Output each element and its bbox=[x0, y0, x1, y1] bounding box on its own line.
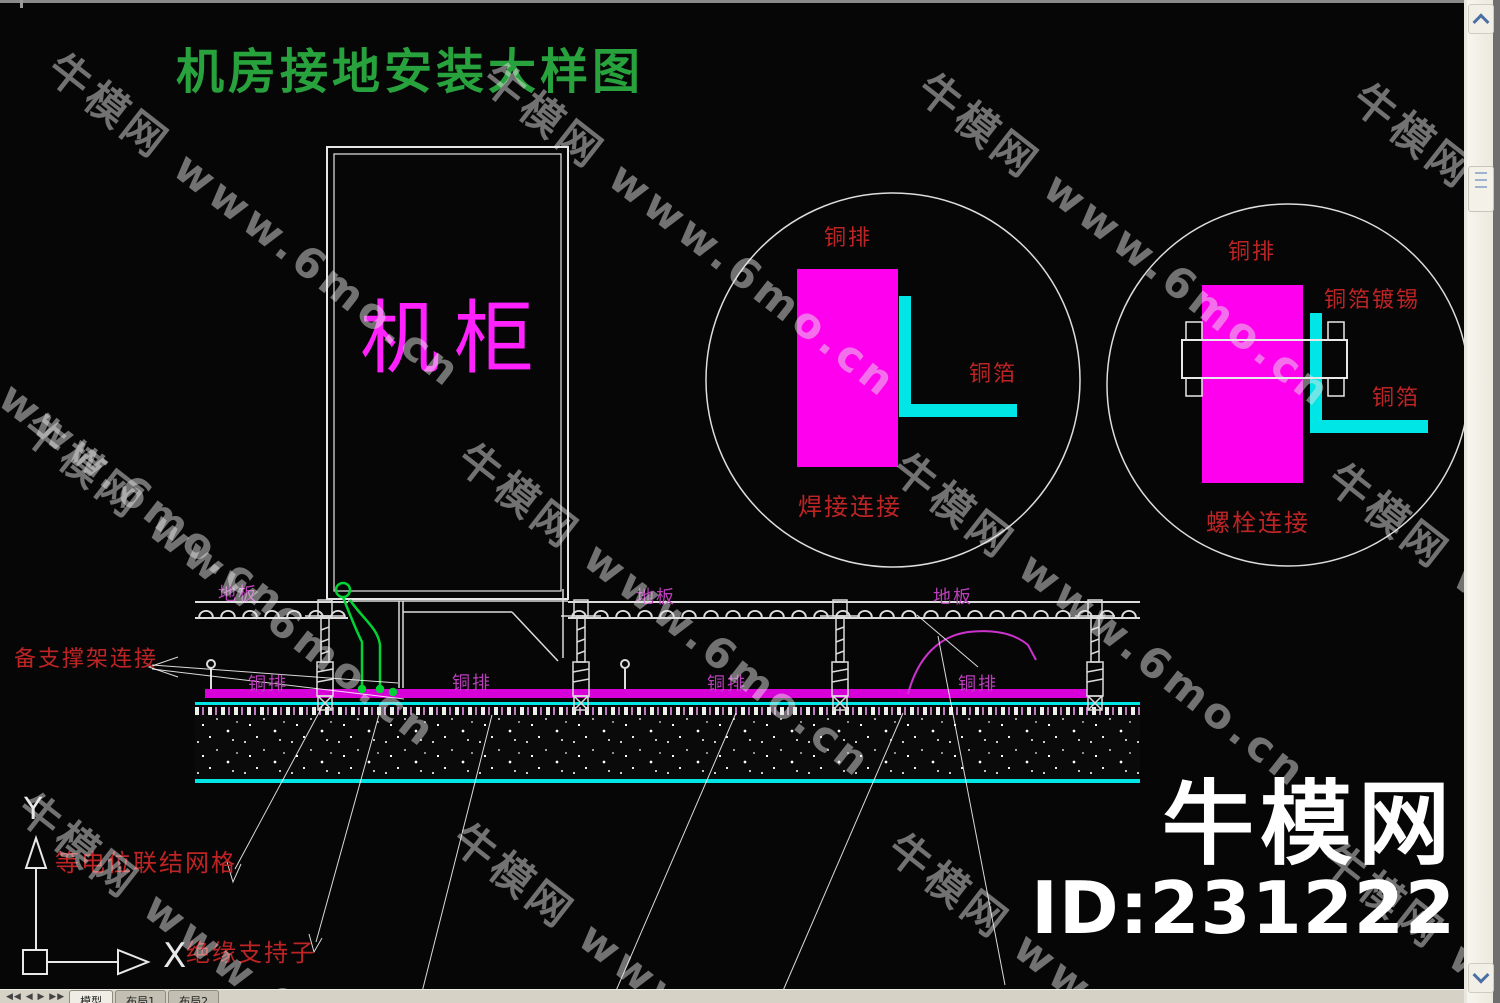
bolt-detail-caption: 螺栓连接 bbox=[1206, 503, 1310, 538]
layout-tabbar[interactable]: ◀◀ ◀ ▶ ▶▶ 模型 布局1 布局2 bbox=[0, 989, 1500, 1003]
floor-label-2: 地板 bbox=[636, 583, 676, 609]
vertical-scrollbar[interactable] bbox=[1464, 0, 1500, 1003]
cad-viewport: 机房接地安装大样图 机柜 地板 地板 地板 铜排 铜排 铜排 铜排 备支撑架连接… bbox=[0, 0, 1500, 1003]
window-top-border bbox=[0, 0, 1500, 3]
weld-detail-foil-label: 铜箔 bbox=[969, 356, 1017, 388]
scroll-down-button[interactable] bbox=[1468, 963, 1494, 993]
tab-layout2[interactable]: 布局2 bbox=[168, 990, 219, 1003]
callout-support-bracket: 备支撑架连接 bbox=[14, 641, 158, 673]
site-badge: 牛模网 ID:231222 bbox=[1026, 778, 1456, 945]
busbar-label-2: 铜排 bbox=[452, 669, 492, 695]
bolt-detail-tinned-foil-label: 铜箔镀锡 bbox=[1324, 282, 1420, 314]
tab-layout1[interactable]: 布局1 bbox=[115, 990, 166, 1003]
scrollbar-thumb[interactable] bbox=[1468, 166, 1494, 212]
scrollbar-outer-edge bbox=[1493, 0, 1500, 1003]
ucs-x-label: X bbox=[163, 936, 186, 976]
tab-model[interactable]: 模型 bbox=[69, 990, 113, 1003]
window-top-tick bbox=[20, 0, 23, 8]
weld-detail-busbar-label: 铜排 bbox=[824, 220, 872, 252]
scrollbar-track[interactable] bbox=[1467, 0, 1493, 1003]
callout-equipotential-grid: 等电位联结网格 bbox=[55, 843, 237, 878]
busbar-label-4: 铜排 bbox=[958, 670, 998, 696]
busbar-label-1: 铜排 bbox=[248, 670, 288, 696]
bolt-detail-busbar-label: 铜排 bbox=[1228, 234, 1276, 266]
chevron-up-icon bbox=[1473, 13, 1490, 30]
cabinet-label: 机柜 bbox=[360, 274, 548, 390]
callout-insulated-support: 绝缘支持子 bbox=[186, 933, 316, 968]
tab-nav-buttons[interactable]: ◀◀ ◀ ▶ ▶▶ bbox=[0, 990, 69, 1002]
ucs-y-label: Y bbox=[24, 792, 42, 827]
site-badge-name: 牛模网 bbox=[1026, 778, 1456, 872]
weld-detail-caption: 焊接连接 bbox=[798, 487, 902, 522]
floor-label-3: 地板 bbox=[933, 583, 973, 609]
drawing-title: 机房接地安装大样图 bbox=[176, 32, 644, 102]
floor-label-1: 地板 bbox=[218, 580, 258, 606]
scroll-up-button[interactable] bbox=[1468, 4, 1494, 34]
chevron-down-icon bbox=[1473, 967, 1490, 984]
site-badge-id: ID:231222 bbox=[1026, 872, 1456, 945]
bolt-detail-foil-label: 铜箔 bbox=[1372, 380, 1420, 412]
busbar-label-3: 铜排 bbox=[707, 670, 747, 696]
